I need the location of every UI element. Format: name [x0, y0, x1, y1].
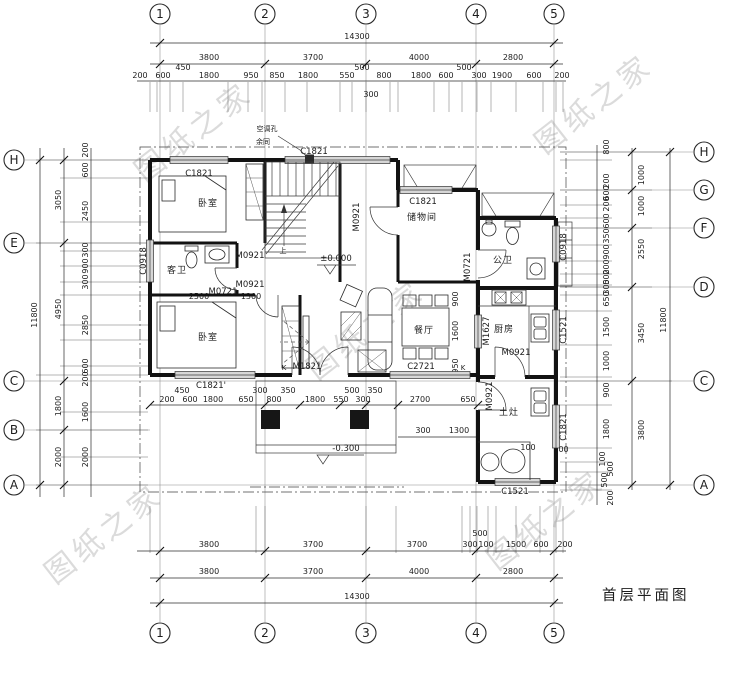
room-label-stove-room: 土灶: [499, 406, 519, 418]
dim-label: 1500: [602, 317, 611, 337]
dim-label: 1800: [199, 71, 219, 80]
axis-label: A: [700, 478, 709, 492]
dim-label: 3700: [303, 53, 323, 62]
axis-label: 4: [472, 626, 480, 640]
dim-label: 800: [266, 395, 281, 404]
drawing-title: 首层平面图: [602, 587, 690, 604]
dim-label: 500: [456, 63, 471, 72]
dim-label: 200: [81, 371, 90, 386]
axis-label: 2: [261, 626, 269, 640]
axis-label: C: [700, 374, 708, 388]
axis-label: E: [10, 236, 18, 250]
axis-label: 4: [472, 7, 480, 21]
porch-column-left: [261, 410, 280, 429]
stove-pot-large: [501, 449, 525, 473]
dim-label: 600: [81, 358, 90, 373]
dim-label: 450: [175, 63, 190, 72]
door-label: M0921: [352, 203, 362, 232]
dim-label: 100: [520, 443, 535, 452]
dim-label: 100: [478, 540, 493, 549]
stove-pot-small: [481, 453, 499, 471]
dimension-col-right: 11800 1000 1000 2550 3450 3800 800 200 6…: [598, 139, 668, 505]
dim-label: 300: [415, 426, 430, 435]
room-label-public-bath: 公卫: [493, 255, 513, 266]
dim-label: 1800: [602, 419, 611, 439]
door-m0921-storage: [370, 207, 398, 235]
dim-label: 900: [81, 258, 90, 273]
watermark: 图纸之家: [38, 478, 170, 592]
room-label-kitchen: 厨房: [494, 323, 514, 335]
dim-label: 3700: [407, 540, 427, 549]
level-porch-label: -0.300: [332, 444, 359, 454]
bed-bedroom2: [157, 302, 236, 368]
dim-label: 600: [81, 162, 90, 177]
dim-label: 600: [602, 213, 611, 228]
window-label: M1627: [482, 317, 492, 346]
dim-label: 300: [81, 274, 90, 289]
dim-label: 650: [602, 291, 611, 306]
dim-label: 350: [602, 228, 611, 243]
dim-label: 600: [526, 71, 541, 80]
dim-label: 2000: [81, 447, 90, 467]
dim-label: 1800: [54, 396, 63, 416]
room-label-bedroom1: 卧室: [198, 197, 218, 209]
window-label: C0918: [559, 233, 569, 261]
axis-label: D: [699, 280, 708, 294]
floor-plan-canvas: 图纸之家 图纸之家 图纸之家 图纸之家 图纸之家 14300 3800 3700: [0, 0, 750, 700]
dim-label: 200: [132, 71, 147, 80]
axis-label: 3: [362, 626, 370, 640]
axis-label: 3: [362, 7, 370, 21]
dim-label: 2550: [637, 239, 646, 259]
dim-label: 350: [280, 386, 295, 395]
dim-label: 200: [557, 540, 572, 549]
stair-up-arrow: [281, 204, 287, 213]
axis-label: 2: [261, 7, 269, 21]
dim-label: 500: [344, 386, 359, 395]
dim-label: 800: [376, 71, 391, 80]
dim-label: 550: [339, 71, 354, 80]
level-main-label: ±0.000: [320, 254, 351, 264]
door-label: M0921: [236, 280, 265, 290]
axis-label: A: [10, 478, 19, 492]
dim-label: 1000: [637, 196, 646, 216]
dim-label: 4000: [409, 53, 429, 62]
dimension-col-left: 11800 3050 4950 1800 2000 200 600 2450 3…: [30, 142, 90, 467]
dim-label: 2800: [503, 53, 523, 62]
axis-label: 5: [550, 626, 558, 640]
dim-label: 4000: [409, 567, 429, 576]
ac-hole-note2: 余同: [256, 137, 270, 146]
dim-label: 300: [355, 395, 370, 404]
stair-up-label: 上: [280, 246, 287, 255]
dim-label: 2450: [81, 201, 90, 221]
dim-label: 900: [451, 291, 460, 306]
dim-label: 350: [367, 386, 382, 395]
toilet-publicbath: [505, 221, 520, 227]
window-label: C1821: [300, 147, 328, 157]
dim-label: 4950: [54, 299, 63, 319]
axis-label: G: [699, 183, 708, 197]
dim-label: 650: [238, 395, 253, 404]
dim-label: 850: [269, 71, 284, 80]
dim-label: 300: [363, 90, 378, 99]
dim-label: 450: [174, 386, 189, 395]
window-label: C1821': [196, 381, 226, 391]
dim-label: 1000: [602, 351, 611, 371]
dim-label: 14300: [344, 592, 369, 601]
sofa: [368, 288, 392, 370]
door-label: M0721: [463, 253, 473, 282]
dim-label: 950: [243, 71, 258, 80]
dim-label: 900: [602, 244, 611, 259]
window-label: C1521: [501, 487, 529, 497]
dim-label: 3700: [303, 567, 323, 576]
dim-label: 200: [602, 196, 611, 211]
dim-label: 2700: [410, 395, 430, 404]
dim-label: 3800: [637, 420, 646, 440]
dim-label: 650: [460, 395, 475, 404]
dim-label: 1500: [506, 540, 526, 549]
dim-label: 11800: [659, 307, 668, 332]
dim-label: 3700: [303, 540, 323, 549]
door-label: M0921: [485, 382, 495, 411]
dim-label: 1800: [298, 71, 318, 80]
window-label: C1821: [409, 197, 437, 207]
k-marker: K: [461, 364, 466, 372]
dim-label: 2000: [54, 447, 63, 467]
axis-label: B: [10, 423, 18, 437]
dim-label: 2850: [81, 315, 90, 335]
dim-label: 1600: [81, 402, 90, 422]
dim-label: 500: [600, 472, 609, 487]
dim-label: 600: [182, 395, 197, 404]
watermark: 图纸之家: [528, 48, 660, 162]
dim-label: 3800: [199, 567, 219, 576]
axis-label: 1: [156, 7, 164, 21]
room-label-bedroom2: 卧室: [198, 331, 218, 343]
dim-label: 1000: [637, 165, 646, 185]
dim-label: 200: [554, 71, 569, 80]
window-label: C2721: [407, 362, 435, 372]
window-label: C1821: [185, 169, 213, 179]
dim-label: 3050: [54, 190, 63, 210]
dim-label: 500: [354, 63, 369, 72]
room-label-storage: 储物间: [407, 211, 437, 223]
axis-label: F: [701, 221, 708, 235]
dim-label: 300: [81, 242, 90, 257]
terrace-outlines: [404, 165, 572, 286]
dim-label: 200: [159, 395, 174, 404]
dim-label: 1600: [451, 321, 460, 341]
door-label: M0921: [236, 251, 265, 261]
dim-label: 1800: [203, 395, 223, 404]
dim-label: 1800: [305, 395, 325, 404]
toilet-guestbath: [185, 246, 198, 251]
axis-label: C: [10, 374, 18, 388]
room-label-dining: 餐厅: [414, 324, 434, 336]
door-label: M0921: [502, 348, 531, 358]
door-label: M0721: [209, 287, 238, 297]
dim-label: 550: [333, 395, 348, 404]
axis-label: H: [9, 153, 18, 167]
dim-label: 600: [533, 540, 548, 549]
dim-label: 300: [471, 71, 486, 80]
dim-label: 3450: [637, 323, 646, 343]
dim-label: 300: [252, 386, 267, 395]
dimension-row-top: 14300 3800 3700 4000 2800 200 600 450 18…: [132, 32, 569, 99]
ac-hole-note: 空调孔: [257, 124, 278, 133]
dim-label: 800: [602, 139, 611, 154]
window-label: C1821: [559, 413, 569, 441]
dim-label: 3800: [199, 540, 219, 549]
dim-label: 200: [81, 142, 90, 157]
axis-label: 5: [550, 7, 558, 21]
dim-label: 1800: [411, 71, 431, 80]
dim-label: 14300: [344, 32, 369, 41]
armchair: [340, 284, 362, 306]
axis-label: H: [699, 145, 708, 159]
dim-label: 200: [606, 490, 615, 505]
dim-label: 500: [472, 529, 487, 538]
dim-label: 1900: [492, 71, 512, 80]
dim-label: 3800: [199, 53, 219, 62]
k-marker: K: [282, 364, 287, 372]
dim-label: 600: [438, 71, 453, 80]
window-label: C1521: [559, 316, 569, 344]
dim-label: 11800: [30, 302, 39, 327]
dim-label: 600: [155, 71, 170, 80]
window-label: C0918: [139, 247, 149, 275]
dim-label: 900: [602, 382, 611, 397]
dim-label: 2800: [503, 567, 523, 576]
staircase: [262, 162, 340, 258]
porch-column-right: [350, 410, 369, 429]
dim-label: 1300: [449, 426, 469, 435]
room-label-guest-bath: 客卫: [167, 264, 187, 276]
dim-label: 300: [462, 540, 477, 549]
axis-label: 1: [156, 626, 164, 640]
door-label: M1821: [293, 362, 322, 372]
